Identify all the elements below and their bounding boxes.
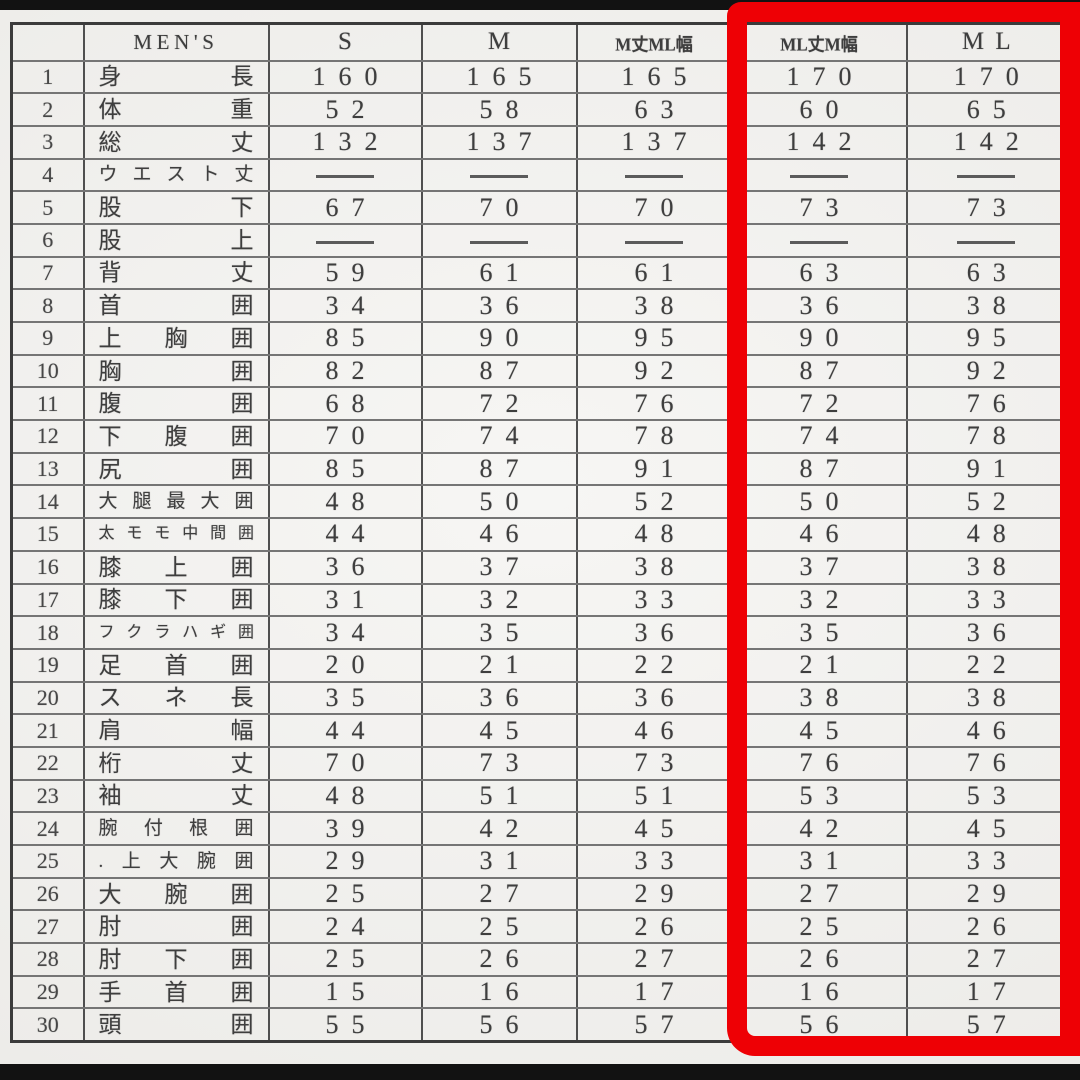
size-value-cell-ml_m: 63 xyxy=(732,257,907,290)
measurement-name: 肘囲 xyxy=(85,915,268,938)
size-value-cell-m_ml: 137 xyxy=(577,126,732,159)
measurement-name-cell: 桁丈 xyxy=(84,747,269,780)
no-value-dash xyxy=(470,241,528,244)
size-value-cell-ml_m: 37 xyxy=(732,551,907,584)
measurement-name: 身長 xyxy=(85,65,268,88)
table-row: 30頭囲5556575657 xyxy=(12,1008,1067,1041)
table-row: 25.上大腕囲2931333133 xyxy=(12,845,1067,878)
size-value: 76 xyxy=(787,748,852,778)
size-value-cell-ml: 26 xyxy=(907,910,1067,943)
row-number-cell: 11 xyxy=(12,387,84,420)
size-value-cell-ml: 17 xyxy=(907,976,1067,1009)
no-value-dash xyxy=(790,175,848,178)
size-value: 56 xyxy=(787,1010,852,1040)
size-value-cell-m_ml: 73 xyxy=(577,747,732,780)
table-row: 7背丈5961616363 xyxy=(12,257,1067,290)
size-value: 90 xyxy=(467,323,532,353)
size-value: 87 xyxy=(787,454,852,484)
row-number-cell: 3 xyxy=(12,126,84,159)
size-value-cell-m xyxy=(422,159,577,192)
size-value: 52 xyxy=(954,487,1019,517)
table-row: 19足首囲2021222122 xyxy=(12,649,1067,682)
size-value: 24 xyxy=(313,912,378,942)
size-value-cell-ml: 38 xyxy=(907,551,1067,584)
size-value: 25 xyxy=(313,944,378,974)
measurement-name-cell: 膝上囲 xyxy=(84,551,269,584)
size-value-cell-ml: 73 xyxy=(907,191,1067,224)
size-value-cell-s: 160 xyxy=(269,61,422,94)
size-value: 57 xyxy=(622,1010,687,1040)
size-value: 36 xyxy=(954,618,1019,648)
size-value-cell-ml: 33 xyxy=(907,584,1067,617)
size-value-cell-m: 165 xyxy=(422,61,577,94)
size-value: 46 xyxy=(787,519,852,549)
row-number-cell: 10 xyxy=(12,355,84,388)
size-value-cell-m_ml: 38 xyxy=(577,289,732,322)
size-value: 32 xyxy=(467,585,532,615)
size-value-cell-ml: 38 xyxy=(907,289,1067,322)
table-row: 1身長160165165170170 xyxy=(12,61,1067,94)
measurement-name-cell: 大腕囲 xyxy=(84,878,269,911)
measurement-name-cell: 大腿最大囲 xyxy=(84,485,269,518)
size-value-cell-m: 74 xyxy=(422,420,577,453)
size-value-cell-m: 50 xyxy=(422,485,577,518)
row-number-cell: 17 xyxy=(12,584,84,617)
size-value-cell-s: 20 xyxy=(269,649,422,682)
measurement-name: 大腿最大囲 xyxy=(85,492,268,511)
size-value: 67 xyxy=(313,193,378,223)
measurement-name: 手首囲 xyxy=(85,981,268,1004)
size-value-cell-ml_m: 56 xyxy=(732,1008,907,1041)
size-value: 57 xyxy=(954,1010,1019,1040)
table-row: 22桁丈7073737676 xyxy=(12,747,1067,780)
measurement-name: 股上 xyxy=(85,229,268,252)
table-row: 3総丈132137137142142 xyxy=(12,126,1067,159)
size-value: 92 xyxy=(954,356,1019,386)
size-value-cell-s: 70 xyxy=(269,420,422,453)
column-header-m: M xyxy=(422,24,577,61)
size-value-cell-ml: 142 xyxy=(907,126,1067,159)
size-value: 74 xyxy=(787,421,852,451)
measurement-name: 背丈 xyxy=(85,261,268,284)
measurement-name-cell: 総丈 xyxy=(84,126,269,159)
table-row: 6股上 xyxy=(12,224,1067,257)
size-chart-table: MEN'SSMM丈ML幅ML丈M幅ML 1身長1601651651701702体… xyxy=(10,22,1068,1043)
size-value: 55 xyxy=(313,1010,378,1040)
size-value: 48 xyxy=(622,519,687,549)
size-value-cell-m: 70 xyxy=(422,191,577,224)
row-number-cell: 29 xyxy=(12,976,84,1009)
size-value: 38 xyxy=(622,552,687,582)
size-value-cell-m: 73 xyxy=(422,747,577,780)
size-value: 60 xyxy=(787,95,852,125)
size-value-cell-m_ml: 91 xyxy=(577,453,732,486)
table-row: 11腹囲6872767276 xyxy=(12,387,1067,420)
row-number-cell: 22 xyxy=(12,747,84,780)
size-value-cell-m: 46 xyxy=(422,518,577,551)
row-number-cell: 24 xyxy=(12,812,84,845)
size-value: 37 xyxy=(467,552,532,582)
size-value: 25 xyxy=(787,912,852,942)
size-value: 34 xyxy=(313,291,378,321)
size-value: 76 xyxy=(954,748,1019,778)
row-number-cell: 25 xyxy=(12,845,84,878)
size-value: 50 xyxy=(467,487,532,517)
measurement-name: 総丈 xyxy=(85,131,268,154)
size-value: 63 xyxy=(622,95,687,125)
size-value-cell-s: 55 xyxy=(269,1008,422,1041)
column-header-num xyxy=(12,24,84,61)
size-value: 137 xyxy=(609,127,700,157)
size-value-cell-ml: 53 xyxy=(907,780,1067,813)
column-header-ml_m: ML丈M幅 xyxy=(732,23,907,62)
size-value: 44 xyxy=(313,519,378,549)
size-value-cell-m: 37 xyxy=(422,551,577,584)
measurement-name-cell: 上胸囲 xyxy=(84,322,269,355)
size-value: 27 xyxy=(954,944,1019,974)
size-value-cell-ml_m: 45 xyxy=(732,714,907,747)
size-value: 36 xyxy=(787,291,852,321)
table-row: 10胸囲8287928792 xyxy=(12,355,1067,388)
size-value-cell-m: 90 xyxy=(422,322,577,355)
table-row: 29手首囲1516171617 xyxy=(12,976,1067,1009)
size-value-cell-ml: 45 xyxy=(907,812,1067,845)
measurement-name: 胸囲 xyxy=(85,360,268,383)
measurement-name: 腕付根囲 xyxy=(85,819,268,838)
measurement-name: 首囲 xyxy=(85,294,268,317)
size-value: 95 xyxy=(622,323,687,353)
no-value-dash xyxy=(316,175,374,178)
size-value-cell-m: 35 xyxy=(422,616,577,649)
measurement-name: 上胸囲 xyxy=(85,327,268,350)
table-row: 2体重5258636065 xyxy=(12,93,1067,126)
measurement-name-cell: 手首囲 xyxy=(84,976,269,1009)
size-value-cell-s: 67 xyxy=(269,191,422,224)
size-value: 72 xyxy=(787,389,852,419)
size-value-cell-ml_m: 36 xyxy=(732,289,907,322)
size-value: 70 xyxy=(313,748,378,778)
table-row: 12下腹囲7074787478 xyxy=(12,420,1067,453)
size-value-cell-m: 51 xyxy=(422,780,577,813)
size-value-cell-ml: 27 xyxy=(907,943,1067,976)
size-value-cell-ml: 57 xyxy=(907,1008,1067,1041)
measurement-name-cell: 身長 xyxy=(84,61,269,94)
size-value-cell-m_ml: 36 xyxy=(577,616,732,649)
measurement-name: 膝下囲 xyxy=(85,588,268,611)
size-value-cell-m: 25 xyxy=(422,910,577,943)
size-value-cell-ml: 78 xyxy=(907,420,1067,453)
table-row: 5股下6770707373 xyxy=(12,191,1067,224)
size-value: 58 xyxy=(467,95,532,125)
measurement-name: 桁丈 xyxy=(85,752,268,775)
size-value: 85 xyxy=(313,454,378,484)
size-value: 78 xyxy=(954,421,1019,451)
size-value-cell-m_ml: 52 xyxy=(577,485,732,518)
measurement-name-cell: 下腹囲 xyxy=(84,420,269,453)
scanned-page: MEN'SSMM丈ML幅ML丈M幅ML 1身長1601651651701702体… xyxy=(0,0,1080,1080)
size-value: 33 xyxy=(954,585,1019,615)
no-value-dash xyxy=(470,175,528,178)
size-value: 26 xyxy=(622,912,687,942)
size-value: 46 xyxy=(467,519,532,549)
table-row: 16膝上囲3637383738 xyxy=(12,551,1067,584)
measurement-name: 尻囲 xyxy=(85,458,268,481)
size-value-cell-s: 25 xyxy=(269,878,422,911)
size-value-cell-ml_m: 26 xyxy=(732,943,907,976)
size-value-cell-m_ml: 22 xyxy=(577,649,732,682)
size-value: 73 xyxy=(787,193,852,223)
table-row: 26大腕囲2527292729 xyxy=(12,878,1067,911)
size-value: 170 xyxy=(941,62,1032,92)
row-number-cell: 18 xyxy=(12,616,84,649)
size-value-cell-ml: 65 xyxy=(907,93,1067,126)
size-value: 26 xyxy=(787,944,852,974)
size-value-cell-s: 29 xyxy=(269,845,422,878)
size-value-cell-m: 45 xyxy=(422,714,577,747)
size-value: 51 xyxy=(622,781,687,811)
measurement-name: 膝上囲 xyxy=(85,556,268,579)
size-value-cell-ml_m: 16 xyxy=(732,976,907,1009)
row-number-cell: 30 xyxy=(12,1008,84,1041)
size-value-cell-m_ml: 57 xyxy=(577,1008,732,1041)
measurement-name: .上大腕囲 xyxy=(85,852,268,871)
size-value: 48 xyxy=(313,487,378,517)
size-value: 25 xyxy=(313,879,378,909)
size-value-cell-m: 21 xyxy=(422,649,577,682)
size-value: 170 xyxy=(774,62,865,92)
measurement-name-cell: 背丈 xyxy=(84,257,269,290)
bottom-letterbox-bar xyxy=(0,1064,1080,1080)
size-value-cell-s: 25 xyxy=(269,943,422,976)
size-value-cell-m: 32 xyxy=(422,584,577,617)
header-row: MEN'SSMM丈ML幅ML丈M幅ML xyxy=(12,24,1067,61)
no-value-dash xyxy=(625,241,683,244)
row-number-cell: 12 xyxy=(12,420,84,453)
size-value-cell-ml: 33 xyxy=(907,845,1067,878)
measurement-name-cell: 胸囲 xyxy=(84,355,269,388)
size-value: 21 xyxy=(467,650,532,680)
size-value-cell-m: 58 xyxy=(422,93,577,126)
size-value-cell-s: 35 xyxy=(269,682,422,715)
size-value: 70 xyxy=(622,193,687,223)
measurement-name-cell: 膝下囲 xyxy=(84,584,269,617)
table-row: 14大腿最大囲4850525052 xyxy=(12,485,1067,518)
size-value-cell-m: 16 xyxy=(422,976,577,1009)
size-value: 36 xyxy=(467,683,532,713)
size-value-cell-m_ml: 17 xyxy=(577,976,732,1009)
row-number-cell: 19 xyxy=(12,649,84,682)
column-header-ml: ML xyxy=(907,24,1067,61)
measurement-name-cell: 肘下囲 xyxy=(84,943,269,976)
size-value-cell-ml: 46 xyxy=(907,714,1067,747)
measurement-name-cell: 尻囲 xyxy=(84,453,269,486)
size-value: 48 xyxy=(313,781,378,811)
size-value: 29 xyxy=(954,879,1019,909)
size-value-cell-m: 137 xyxy=(422,126,577,159)
measurement-name: 腹囲 xyxy=(85,392,268,415)
size-value: 91 xyxy=(954,454,1019,484)
row-number-cell: 8 xyxy=(12,289,84,322)
size-value-cell-s: 39 xyxy=(269,812,422,845)
size-value: 34 xyxy=(313,618,378,648)
size-value-cell-m_ml: 70 xyxy=(577,191,732,224)
size-value-cell-ml_m: 74 xyxy=(732,420,907,453)
size-value-cell-ml: 38 xyxy=(907,682,1067,715)
column-header-s: S xyxy=(269,24,422,61)
size-value-cell-ml_m xyxy=(732,159,907,192)
no-value-dash xyxy=(316,241,374,244)
size-value-cell-s: 85 xyxy=(269,322,422,355)
size-value-cell-s: 68 xyxy=(269,387,422,420)
measurement-name: 肩幅 xyxy=(85,719,268,742)
size-value: 20 xyxy=(313,650,378,680)
table-row: 20スネ長3536363838 xyxy=(12,682,1067,715)
size-value-cell-m_ml: 63 xyxy=(577,93,732,126)
table-row: 8首囲3436383638 xyxy=(12,289,1067,322)
no-value-dash xyxy=(790,241,848,244)
size-value-cell-ml_m: 42 xyxy=(732,812,907,845)
size-value-cell-m: 87 xyxy=(422,355,577,388)
size-value-cell-ml: 52 xyxy=(907,485,1067,518)
size-value-cell-ml_m: 21 xyxy=(732,649,907,682)
size-value: 61 xyxy=(467,258,532,288)
top-letterbox-bar xyxy=(0,0,1080,10)
size-value-cell-ml: 76 xyxy=(907,747,1067,780)
size-value: 17 xyxy=(622,977,687,1007)
row-number-cell: 2 xyxy=(12,93,84,126)
size-value: 26 xyxy=(954,912,1019,942)
size-value: 63 xyxy=(954,258,1019,288)
row-number-cell: 28 xyxy=(12,943,84,976)
size-value: 27 xyxy=(787,879,852,909)
row-number-cell: 5 xyxy=(12,191,84,224)
size-value: 76 xyxy=(954,389,1019,419)
measurement-name-cell: 首囲 xyxy=(84,289,269,322)
measurement-name-cell: 腹囲 xyxy=(84,387,269,420)
size-value: 82 xyxy=(313,356,378,386)
measurement-name-cell: スネ長 xyxy=(84,682,269,715)
size-value-cell-m_ml: 165 xyxy=(577,61,732,94)
size-value-cell-ml: 92 xyxy=(907,355,1067,388)
size-value: 42 xyxy=(787,814,852,844)
size-value-cell-s: 52 xyxy=(269,93,422,126)
size-value-cell-s: 34 xyxy=(269,289,422,322)
size-value: 160 xyxy=(300,62,391,92)
size-value: 39 xyxy=(313,814,378,844)
size-value-cell-m_ml xyxy=(577,224,732,257)
size-value: 87 xyxy=(467,356,532,386)
size-value-cell-s: 85 xyxy=(269,453,422,486)
size-value: 31 xyxy=(467,846,532,876)
measurement-name: 太モモ中間囲 xyxy=(85,526,268,542)
row-number-cell: 23 xyxy=(12,780,84,813)
size-value: 42 xyxy=(467,814,532,844)
size-value-cell-ml_m: 60 xyxy=(732,93,907,126)
size-value: 36 xyxy=(622,618,687,648)
size-value: 35 xyxy=(467,618,532,648)
table-row: 28肘下囲2526272627 xyxy=(12,943,1067,976)
size-value-cell-m_ml: 27 xyxy=(577,943,732,976)
column-header-name: MEN'S xyxy=(84,24,269,61)
size-value-cell-s: 31 xyxy=(269,584,422,617)
row-number-cell: 15 xyxy=(12,518,84,551)
measurement-name: ウエスト丈 xyxy=(85,165,268,184)
size-value-cell-s: 48 xyxy=(269,485,422,518)
size-value-cell-m: 87 xyxy=(422,453,577,486)
size-value-cell-m_ml: 61 xyxy=(577,257,732,290)
size-value-cell-m_ml: 33 xyxy=(577,584,732,617)
size-value-cell-ml_m xyxy=(732,224,907,257)
measurement-name-cell: 股上 xyxy=(84,224,269,257)
size-value: 45 xyxy=(622,814,687,844)
measurement-name-cell: .上大腕囲 xyxy=(84,845,269,878)
size-value-cell-m_ml xyxy=(577,159,732,192)
size-value-cell-ml_m: 31 xyxy=(732,845,907,878)
table-row: 23袖丈4851515353 xyxy=(12,780,1067,813)
size-value-cell-m xyxy=(422,224,577,257)
size-value-cell-ml_m: 25 xyxy=(732,910,907,943)
size-value-cell-m_ml: 33 xyxy=(577,845,732,878)
measurement-name-cell: 腕付根囲 xyxy=(84,812,269,845)
size-value: 68 xyxy=(313,389,378,419)
measurement-name: 下腹囲 xyxy=(85,425,268,448)
measurement-name: スネ長 xyxy=(85,686,268,709)
size-value-cell-ml_m: 35 xyxy=(732,616,907,649)
size-value: 59 xyxy=(313,258,378,288)
size-value-cell-ml_m: 76 xyxy=(732,747,907,780)
size-value-cell-ml_m: 170 xyxy=(732,61,907,94)
size-value-cell-ml_m: 46 xyxy=(732,518,907,551)
size-value-cell-ml: 63 xyxy=(907,257,1067,290)
size-value-cell-ml_m: 32 xyxy=(732,584,907,617)
size-value-cell-s: 59 xyxy=(269,257,422,290)
size-value: 38 xyxy=(787,683,852,713)
size-value: 37 xyxy=(787,552,852,582)
size-value-cell-ml_m: 142 xyxy=(732,126,907,159)
size-value: 87 xyxy=(787,356,852,386)
size-value-cell-ml: 170 xyxy=(907,61,1067,94)
size-value-cell-m_ml: 45 xyxy=(577,812,732,845)
table-row: 27肘囲2425262526 xyxy=(12,910,1067,943)
no-value-dash xyxy=(957,241,1015,244)
size-value-cell-m_ml: 92 xyxy=(577,355,732,388)
size-value-cell-m: 56 xyxy=(422,1008,577,1041)
row-number-cell: 7 xyxy=(12,257,84,290)
size-value-cell-s: 36 xyxy=(269,551,422,584)
size-value: 70 xyxy=(467,193,532,223)
size-value: 21 xyxy=(787,650,852,680)
size-value: 165 xyxy=(609,62,700,92)
size-value-cell-ml_m: 72 xyxy=(732,387,907,420)
size-value: 61 xyxy=(622,258,687,288)
size-value-cell-s: 82 xyxy=(269,355,422,388)
size-value-cell-ml_m: 53 xyxy=(732,780,907,813)
size-value-cell-m: 36 xyxy=(422,289,577,322)
size-value: 52 xyxy=(313,95,378,125)
table-row: 24腕付根囲3942454245 xyxy=(12,812,1067,845)
size-value: 50 xyxy=(787,487,852,517)
measurement-name: 大腕囲 xyxy=(85,883,268,906)
size-value: 92 xyxy=(622,356,687,386)
size-value: 45 xyxy=(954,814,1019,844)
size-value-cell-ml: 22 xyxy=(907,649,1067,682)
size-value: 91 xyxy=(622,454,687,484)
size-value: 52 xyxy=(622,487,687,517)
size-value: 142 xyxy=(941,127,1032,157)
size-value: 46 xyxy=(954,716,1019,746)
row-number-cell: 6 xyxy=(12,224,84,257)
size-value-cell-ml_m: 87 xyxy=(732,453,907,486)
